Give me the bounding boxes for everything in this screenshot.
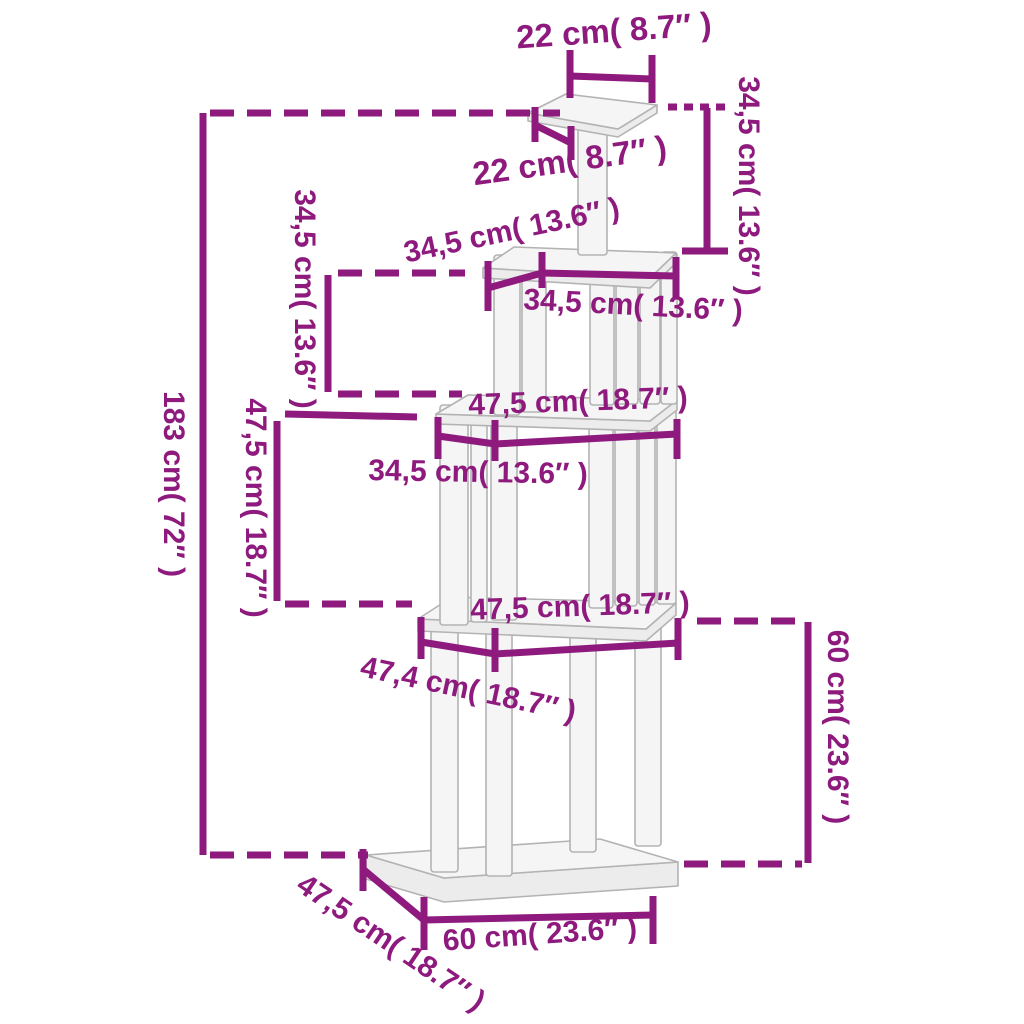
dimension-label: 47,5 cm( 18.7″ ): [239, 398, 272, 618]
dimension-label: 22 cm( 8.7″ ): [515, 5, 713, 56]
dimension-top-width: 22 cm( 8.7″ ): [515, 5, 713, 103]
dimension-label: 183 cm( 72″ ): [157, 391, 190, 577]
dimension-label: 60 cm( 23.6″ ): [821, 630, 854, 824]
dimension-upper-right: 34,5 cm( 13.6″ ): [668, 76, 765, 296]
extension-line: [285, 414, 417, 417]
scratching-post: [635, 615, 661, 846]
dimension-lower-right: 60 cm( 23.6″ ): [684, 621, 854, 864]
dimension-label: 34,5 cm( 13.6″ ): [732, 76, 765, 296]
dimension-line: [570, 76, 652, 79]
diagram-canvas: 183 cm( 72″ ) 34,5 cm( 13.6″ ) 47,5 cm( …: [0, 0, 1024, 1024]
dimension-label: 34,5 cm( 13.6″ ): [288, 189, 321, 409]
dimension-label: 34,5 cm( 13.6″ ): [523, 283, 744, 327]
base-platform: [366, 839, 678, 902]
cat-tree-dimension-diagram: 183 cm( 72″ ) 34,5 cm( 13.6″ ) 47,5 cm( …: [0, 0, 1024, 1024]
dimension-label: 47,4 cm( 18.7″ ): [358, 650, 580, 728]
scratching-post: [431, 615, 458, 872]
dimension-upper-left: 34,5 cm( 13.6″ ): [288, 189, 465, 409]
dimension-label: 34,5 cm( 13.6″ ): [368, 454, 588, 491]
dimension-mid-left: 47,5 cm( 18.7″ ): [239, 398, 417, 618]
